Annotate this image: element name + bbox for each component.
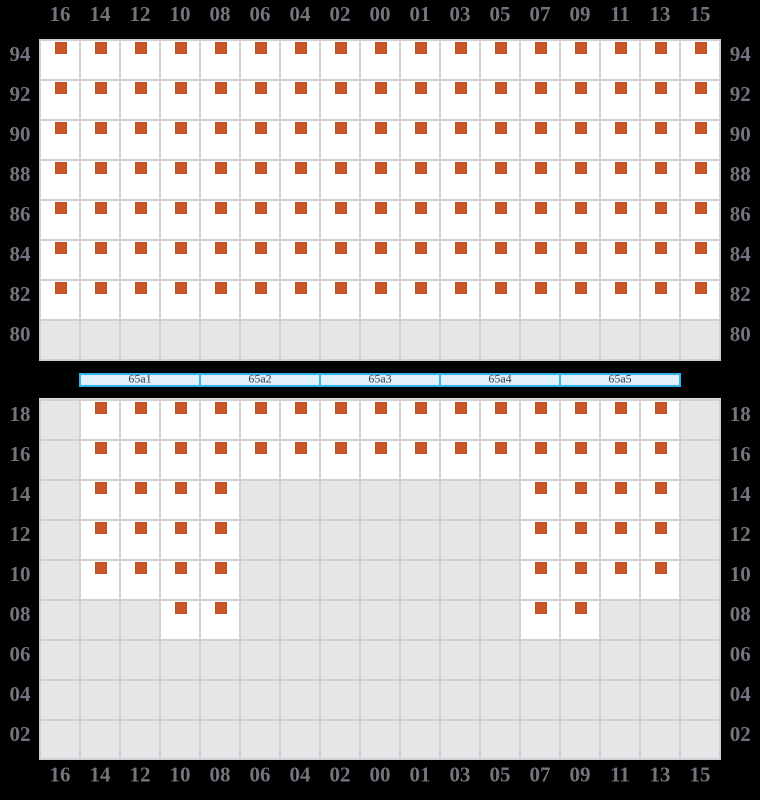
svg-text:88: 88 bbox=[10, 162, 31, 186]
svg-text:94: 94 bbox=[10, 42, 32, 66]
svg-text:65a4: 65a4 bbox=[488, 372, 511, 386]
svg-text:08: 08 bbox=[10, 602, 31, 626]
svg-text:02: 02 bbox=[330, 763, 351, 787]
svg-text:15: 15 bbox=[690, 763, 711, 787]
svg-text:15: 15 bbox=[690, 2, 711, 26]
svg-text:16: 16 bbox=[10, 442, 31, 466]
svg-text:92: 92 bbox=[730, 82, 751, 106]
svg-text:18: 18 bbox=[10, 402, 31, 426]
svg-text:65a3: 65a3 bbox=[368, 372, 391, 386]
svg-text:03: 03 bbox=[450, 763, 471, 787]
svg-text:16: 16 bbox=[730, 442, 751, 466]
svg-text:65a1: 65a1 bbox=[128, 372, 151, 386]
svg-text:86: 86 bbox=[730, 202, 751, 226]
svg-text:06: 06 bbox=[730, 642, 751, 666]
svg-text:07: 07 bbox=[530, 2, 551, 26]
svg-text:04: 04 bbox=[10, 682, 32, 706]
svg-text:10: 10 bbox=[730, 562, 751, 586]
svg-text:10: 10 bbox=[170, 2, 191, 26]
svg-text:02: 02 bbox=[730, 722, 751, 746]
svg-text:12: 12 bbox=[10, 522, 31, 546]
svg-text:92: 92 bbox=[10, 82, 31, 106]
svg-text:06: 06 bbox=[10, 642, 31, 666]
svg-text:16: 16 bbox=[50, 763, 71, 787]
svg-text:65a5: 65a5 bbox=[608, 372, 631, 386]
svg-text:88: 88 bbox=[730, 162, 751, 186]
svg-text:16: 16 bbox=[50, 2, 71, 26]
svg-text:09: 09 bbox=[570, 763, 591, 787]
svg-text:65a2: 65a2 bbox=[248, 372, 271, 386]
svg-text:84: 84 bbox=[730, 242, 752, 266]
svg-text:14: 14 bbox=[730, 482, 752, 506]
svg-text:10: 10 bbox=[170, 763, 191, 787]
svg-text:86: 86 bbox=[10, 202, 31, 226]
svg-text:11: 11 bbox=[610, 763, 630, 787]
svg-text:00: 00 bbox=[370, 2, 391, 26]
svg-text:06: 06 bbox=[250, 763, 271, 787]
svg-text:13: 13 bbox=[650, 763, 671, 787]
svg-text:12: 12 bbox=[730, 522, 751, 546]
svg-text:03: 03 bbox=[450, 2, 471, 26]
svg-text:14: 14 bbox=[10, 482, 32, 506]
svg-text:82: 82 bbox=[10, 282, 31, 306]
svg-text:90: 90 bbox=[10, 122, 31, 146]
svg-text:14: 14 bbox=[90, 2, 112, 26]
svg-text:94: 94 bbox=[730, 42, 752, 66]
svg-text:14: 14 bbox=[90, 763, 112, 787]
svg-text:02: 02 bbox=[330, 2, 351, 26]
svg-text:90: 90 bbox=[730, 122, 751, 146]
svg-text:04: 04 bbox=[290, 2, 312, 26]
svg-text:08: 08 bbox=[210, 2, 231, 26]
svg-text:04: 04 bbox=[730, 682, 752, 706]
svg-text:18: 18 bbox=[730, 402, 751, 426]
svg-text:07: 07 bbox=[530, 763, 551, 787]
svg-text:08: 08 bbox=[730, 602, 751, 626]
svg-text:04: 04 bbox=[290, 763, 312, 787]
svg-text:00: 00 bbox=[370, 763, 391, 787]
svg-text:01: 01 bbox=[410, 763, 431, 787]
svg-text:13: 13 bbox=[650, 2, 671, 26]
svg-text:84: 84 bbox=[10, 242, 32, 266]
svg-text:08: 08 bbox=[210, 763, 231, 787]
svg-text:09: 09 bbox=[570, 2, 591, 26]
svg-text:12: 12 bbox=[130, 2, 151, 26]
svg-text:01: 01 bbox=[410, 2, 431, 26]
svg-text:82: 82 bbox=[730, 282, 751, 306]
svg-text:80: 80 bbox=[10, 322, 31, 346]
svg-text:02: 02 bbox=[10, 722, 31, 746]
svg-text:80: 80 bbox=[730, 322, 751, 346]
svg-text:12: 12 bbox=[130, 763, 151, 787]
svg-text:10: 10 bbox=[10, 562, 31, 586]
svg-text:11: 11 bbox=[610, 2, 630, 26]
svg-text:06: 06 bbox=[250, 2, 271, 26]
svg-text:05: 05 bbox=[490, 763, 511, 787]
svg-text:05: 05 bbox=[490, 2, 511, 26]
